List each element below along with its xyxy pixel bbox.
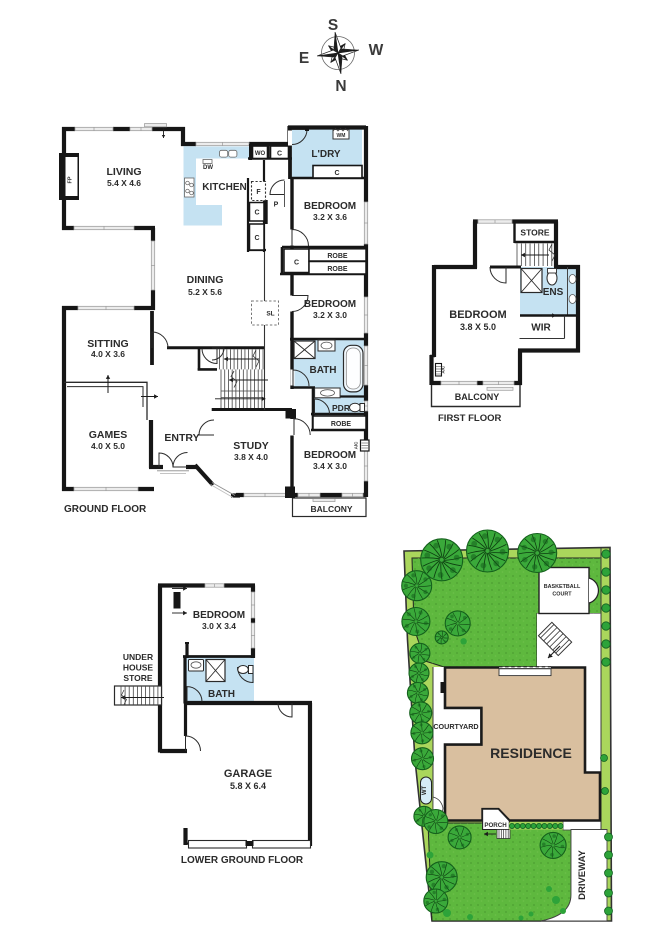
svg-text:BATH: BATH (309, 365, 336, 376)
svg-text:BALCONY: BALCONY (310, 504, 352, 514)
svg-text:A/C: A/C (441, 365, 446, 374)
svg-text:5.8 X 6.4: 5.8 X 6.4 (230, 781, 266, 791)
svg-text:ENTRY: ENTRY (164, 432, 199, 444)
svg-text:3.2 X 3.6: 3.2 X 3.6 (313, 212, 347, 222)
svg-text:BEDROOM: BEDROOM (304, 299, 356, 310)
svg-text:W: W (369, 42, 384, 59)
svg-text:SL: SL (266, 311, 274, 318)
svg-text:C: C (277, 151, 282, 158)
svg-text:3.2 X 3.0: 3.2 X 3.0 (313, 310, 347, 320)
svg-text:WIR: WIR (531, 323, 551, 334)
svg-text:3.0 X 3.4: 3.0 X 3.4 (202, 621, 236, 631)
svg-text:3.8 X 5.0: 3.8 X 5.0 (460, 322, 496, 332)
svg-text:F: F (256, 189, 261, 196)
svg-text:ROBE: ROBE (327, 253, 348, 260)
svg-text:BASKETBALL: BASKETBALL (544, 584, 581, 590)
svg-text:BALCONY: BALCONY (455, 392, 500, 402)
svg-text:PDR: PDR (332, 403, 350, 413)
svg-text:COURT: COURT (552, 592, 572, 598)
svg-text:P: P (274, 202, 279, 209)
svg-text:L'DRY: L'DRY (311, 149, 341, 160)
svg-text:STORE: STORE (123, 673, 152, 683)
svg-text:LOWER GROUND FLOOR: LOWER GROUND FLOOR (181, 855, 304, 866)
svg-text:GARAGE: GARAGE (224, 768, 272, 780)
svg-text:N: N (335, 78, 346, 95)
svg-text:4.0 X 5.0: 4.0 X 5.0 (91, 441, 125, 451)
svg-text:5.4 X 4.6: 5.4 X 4.6 (107, 178, 141, 188)
svg-text:S: S (328, 17, 338, 34)
svg-text:BEDROOM: BEDROOM (193, 610, 245, 621)
svg-text:UNDER: UNDER (123, 652, 153, 662)
svg-text:C: C (334, 170, 339, 177)
svg-text:3.4 X 3.0: 3.4 X 3.0 (313, 461, 347, 471)
svg-text:DW: DW (203, 165, 213, 171)
svg-text:DINING: DINING (187, 274, 224, 286)
svg-text:C: C (294, 260, 299, 267)
svg-text:FP: FP (68, 176, 74, 183)
svg-text:BEDROOM: BEDROOM (304, 201, 356, 212)
svg-text:5.2 X 5.6: 5.2 X 5.6 (188, 287, 222, 297)
svg-text:FIRST FLOOR: FIRST FLOOR (438, 413, 501, 424)
svg-text:WT: WT (422, 786, 428, 796)
svg-text:A/C: A/C (353, 441, 358, 450)
svg-text:WM: WM (337, 133, 346, 139)
svg-text:C: C (254, 210, 259, 217)
svg-text:C: C (254, 235, 259, 242)
svg-text:STORE: STORE (520, 228, 549, 238)
svg-text:HOUSE: HOUSE (123, 663, 154, 673)
svg-text:COURTYARD: COURTYARD (433, 722, 478, 731)
svg-text:BEDROOM: BEDROOM (304, 450, 356, 461)
svg-text:DRIVEWAY: DRIVEWAY (577, 849, 588, 899)
svg-text:GAMES: GAMES (89, 429, 128, 441)
svg-text:ROBE: ROBE (331, 421, 352, 428)
svg-text:BEDROOM: BEDROOM (449, 309, 506, 321)
svg-text:ROBE: ROBE (327, 266, 348, 273)
svg-text:GROUND FLOOR: GROUND FLOOR (64, 504, 147, 515)
svg-text:WO: WO (255, 151, 266, 157)
svg-text:PORCH: PORCH (484, 822, 507, 829)
svg-text:STUDY: STUDY (233, 440, 269, 452)
svg-text:ENS: ENS (543, 287, 564, 298)
svg-text:4.0 X 3.6: 4.0 X 3.6 (91, 349, 125, 359)
svg-text:LIVING: LIVING (106, 166, 141, 178)
svg-text:RESIDENCE: RESIDENCE (490, 745, 572, 761)
svg-text:BATH: BATH (208, 689, 235, 700)
svg-text:E: E (299, 50, 309, 67)
svg-text:KITCHEN: KITCHEN (202, 182, 246, 193)
svg-text:3.8 X 4.0: 3.8 X 4.0 (234, 452, 268, 462)
